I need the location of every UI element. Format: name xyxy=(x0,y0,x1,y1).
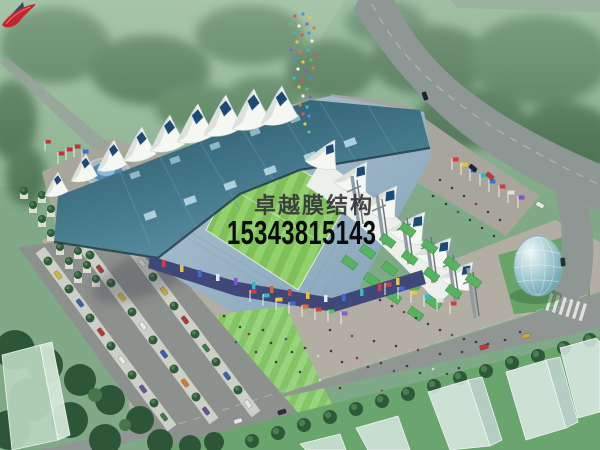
scene-canvas xyxy=(0,0,600,450)
stadium-rendering-image: 卓越膜结构 15343815143 xyxy=(0,0,600,450)
